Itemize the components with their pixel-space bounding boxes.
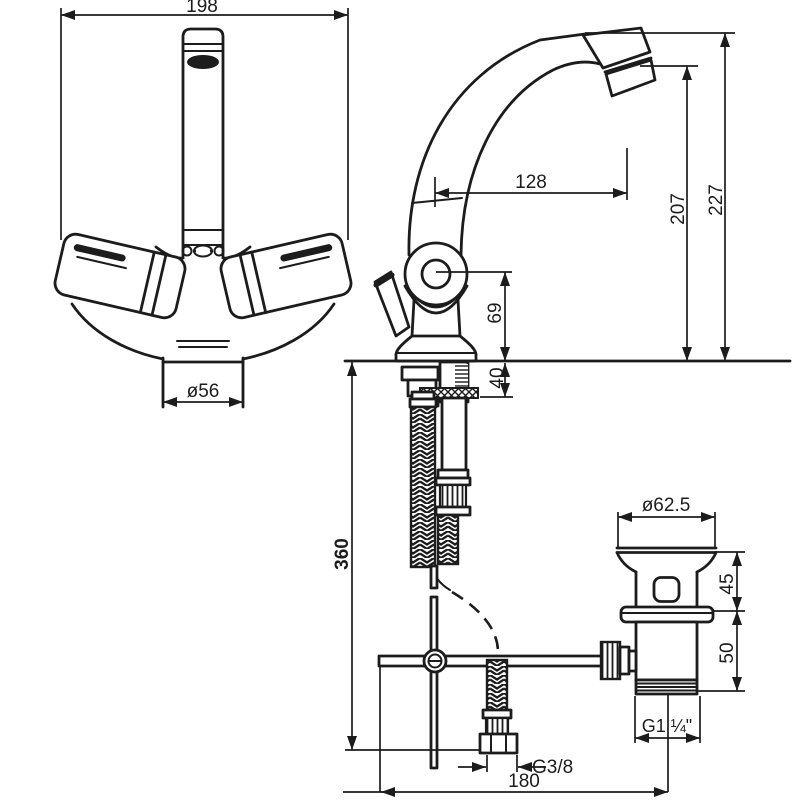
hose-hex-nut <box>480 734 517 753</box>
dim-deck-thickness: 40 <box>480 363 513 397</box>
dim-label-45: 45 <box>717 573 738 594</box>
dim-label-o62-5: ø62.5 <box>642 495 691 516</box>
dim-label-128: 128 <box>515 172 547 193</box>
dim-label-50: 50 <box>717 642 738 663</box>
dim-label-40: 40 <box>487 367 508 388</box>
below-deck-assembly <box>379 362 602 768</box>
rod-knurl-connector <box>601 642 620 679</box>
hose-alternate-position <box>452 592 498 654</box>
dim-label-360: 360 <box>332 538 353 570</box>
supply-hose-2 <box>438 515 458 564</box>
technical-drawing: 198 128 207 227 69 40 <box>0 0 800 800</box>
aerator-front <box>187 55 219 69</box>
supply-hose-1 <box>411 407 435 567</box>
drain-rim <box>617 548 716 553</box>
drain-flange <box>621 607 713 622</box>
dim-drain-upper-height: 45 <box>712 552 745 611</box>
spout-inner-curve <box>461 62 600 255</box>
drain-body <box>636 622 697 680</box>
dim-label-69: 69 <box>485 302 506 323</box>
pop-up-rod <box>431 597 437 768</box>
drain-assembly <box>601 548 716 694</box>
dim-label-198: 198 <box>186 0 218 17</box>
dim-base-diameter: ø56 <box>163 381 243 402</box>
drain-slot <box>654 578 679 602</box>
body-base <box>396 336 476 361</box>
dim-label-o56: ø56 <box>187 381 220 402</box>
dim-drain-top-diameter: ø62.5 <box>618 495 715 548</box>
front-view <box>53 29 354 407</box>
dim-label-180: 180 <box>508 771 540 792</box>
dim-outlet-height: 207 <box>640 66 698 361</box>
drawing-svg: 198 128 207 227 69 40 <box>0 0 800 800</box>
dim-label-207: 207 <box>668 193 689 225</box>
dim-spout-reach: 128 <box>435 148 627 207</box>
supply-hose-lower <box>487 660 507 710</box>
valve-housing <box>405 243 467 305</box>
pop-up-rod-upper <box>431 566 437 588</box>
drain-funnel <box>617 553 716 573</box>
dim-label-227: 227 <box>706 184 727 216</box>
dim-label-g114: G1 ¼" <box>642 716 692 736</box>
